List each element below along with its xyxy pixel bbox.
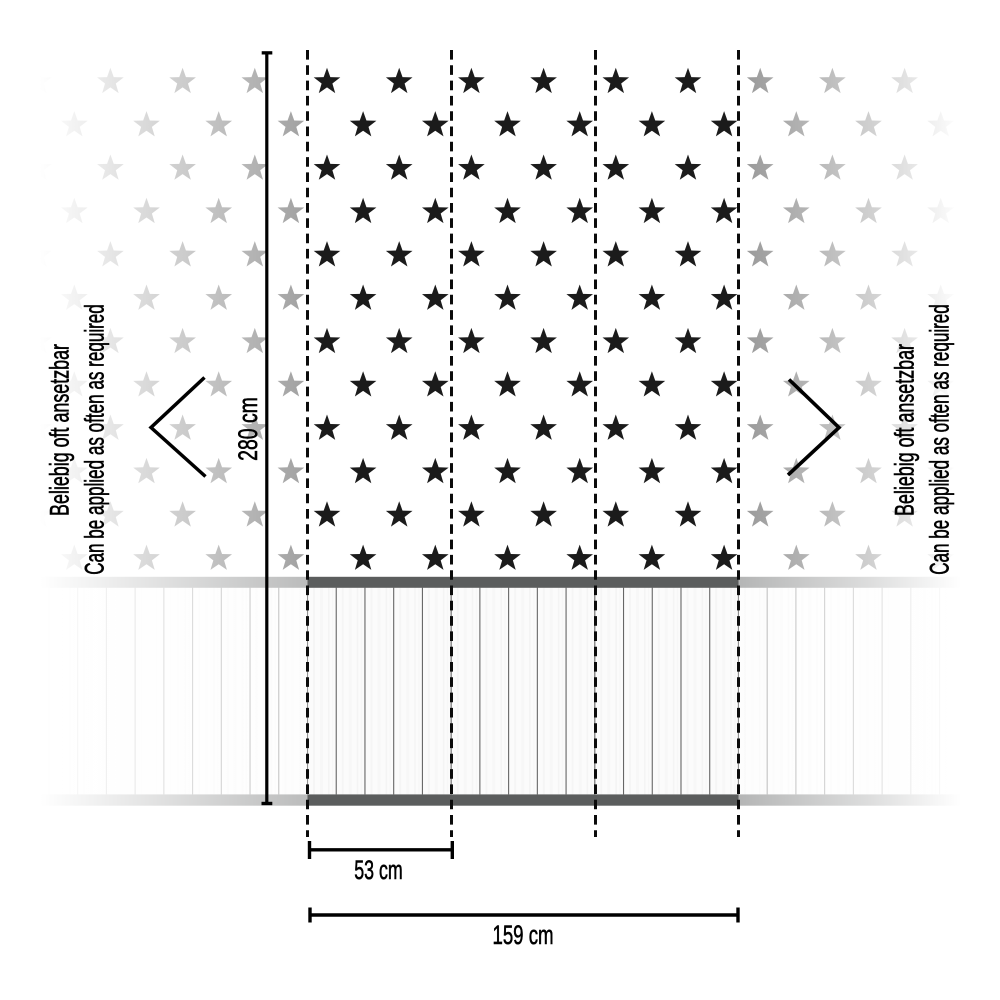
svg-text:Beliebig oft ansetzbar: Beliebig oft ansetzbar xyxy=(45,344,74,516)
svg-text:Beliebig oft ansetzbar: Beliebig oft ansetzbar xyxy=(890,344,919,516)
svg-text:Can be applied as often as req: Can be applied as often as required xyxy=(80,304,110,575)
svg-text:53 cm: 53 cm xyxy=(354,854,402,885)
svg-text:280 cm: 280 cm xyxy=(233,397,263,461)
svg-text:Can be applied as often as req: Can be applied as often as required xyxy=(925,304,955,575)
svg-text:159 cm: 159 cm xyxy=(492,919,553,949)
